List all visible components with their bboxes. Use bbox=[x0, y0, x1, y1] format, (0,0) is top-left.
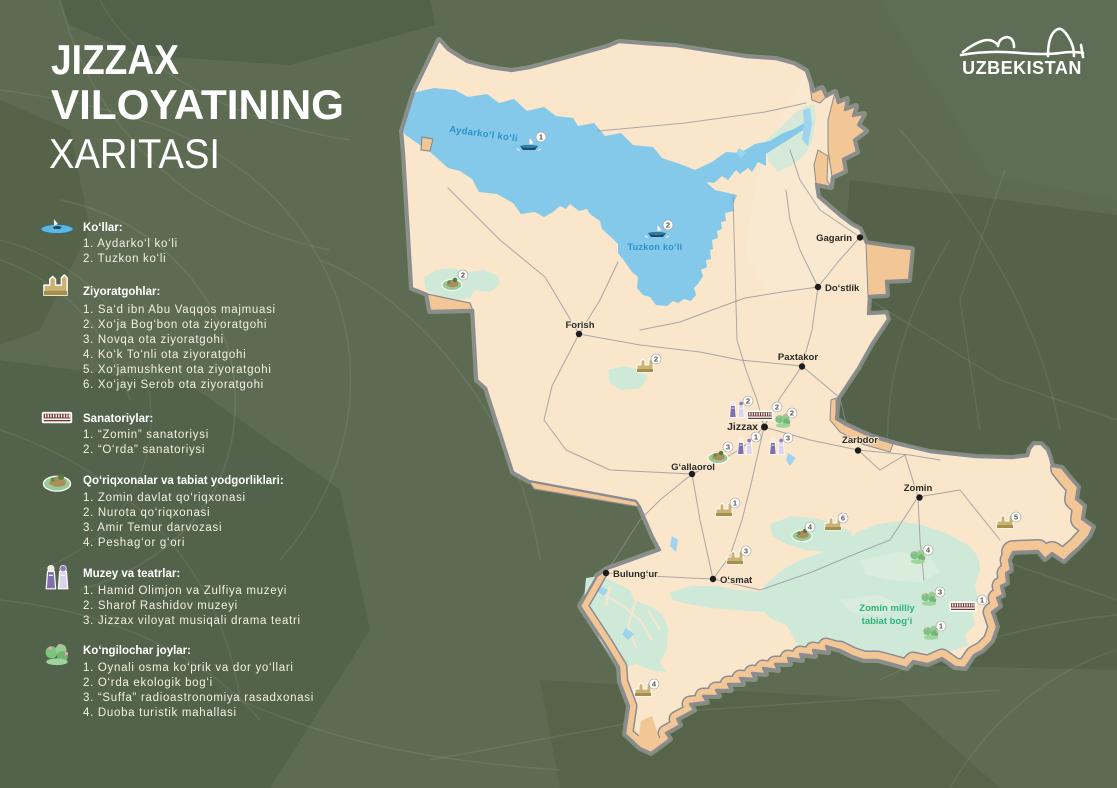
svg-text:1: 1 bbox=[754, 433, 758, 442]
svg-text:1: 1 bbox=[939, 622, 943, 631]
svg-text:4. Duoba turistik mahallasi: 4. Duoba turistik mahallasi bbox=[83, 707, 237, 719]
svg-text:Tuzkon ko‘li: Tuzkon ko‘li bbox=[628, 242, 683, 252]
svg-text:Zarbdor: Zarbdor bbox=[842, 435, 878, 446]
svg-text:O‘smat: O‘smat bbox=[720, 575, 753, 586]
svg-text:1. Aydarko‘l ko‘li: 1. Aydarko‘l ko‘li bbox=[83, 238, 178, 250]
svg-text:3. “Suffa” radioastronomiya ra: 3. “Suffa” radioastronomiya rasadxonasi bbox=[83, 692, 314, 704]
svg-text:UZBEKISTAN: UZBEKISTAN bbox=[962, 58, 1082, 78]
svg-text:4. Peshag‘or g‘ori: 4. Peshag‘or g‘ori bbox=[83, 537, 185, 549]
svg-text:1. Hamid Olimjon va Zulfiya mu: 1. Hamid Olimjon va Zulfiya muzeyi bbox=[83, 585, 287, 597]
svg-text:2. Tuzkon ko‘li: 2. Tuzkon ko‘li bbox=[83, 253, 166, 265]
svg-text:Ko‘llar:: Ko‘llar: bbox=[83, 222, 123, 234]
svg-text:Zomin milliy: Zomin milliy bbox=[859, 603, 915, 614]
svg-text:2: 2 bbox=[775, 403, 779, 412]
svg-text:Paxtakor: Paxtakor bbox=[778, 352, 818, 363]
svg-text:VILOYATINING: VILOYATINING bbox=[51, 81, 344, 128]
svg-text:Gagarin: Gagarin bbox=[816, 233, 852, 244]
svg-text:Zomin: Zomin bbox=[904, 483, 933, 494]
svg-text:1. “Zomin” sanatoriysi: 1. “Zomin” sanatoriysi bbox=[83, 429, 209, 441]
svg-text:3: 3 bbox=[726, 443, 730, 452]
svg-text:2: 2 bbox=[666, 221, 670, 230]
svg-text:tabiat bog‘i: tabiat bog‘i bbox=[862, 616, 913, 627]
svg-text:2: 2 bbox=[461, 271, 465, 280]
svg-text:Bulung‘ur: Bulung‘ur bbox=[613, 569, 658, 580]
svg-text:Sanatoriylar:: Sanatoriylar: bbox=[83, 413, 153, 425]
svg-text:Muzey va teatrlar:: Muzey va teatrlar: bbox=[83, 568, 180, 580]
svg-text:1. Oynali osma ko‘prik va dor: 1. Oynali osma ko‘prik va dor yo‘llari bbox=[83, 662, 294, 674]
svg-text:Forish: Forish bbox=[565, 320, 594, 331]
svg-text:3: 3 bbox=[938, 588, 942, 597]
svg-text:Ziyoratgohlar:: Ziyoratgohlar: bbox=[83, 286, 160, 298]
svg-text:3. Jizzax viloyat musiqali dra: 3. Jizzax viloyat musiqali drama teatri bbox=[83, 615, 301, 627]
svg-text:1. Sa‘d ibn Abu Vaqqos majmuas: 1. Sa‘d ibn Abu Vaqqos majmuasi bbox=[83, 304, 276, 316]
svg-text:2: 2 bbox=[654, 355, 658, 364]
svg-text:2: 2 bbox=[790, 409, 794, 418]
svg-text:5. Xo‘jamushkent ota ziyoratgo: 5. Xo‘jamushkent ota ziyoratgohi bbox=[83, 364, 272, 376]
svg-text:2. Nurota qo‘riqxonasi: 2. Nurota qo‘riqxonasi bbox=[83, 507, 210, 519]
svg-text:3: 3 bbox=[744, 547, 748, 556]
svg-text:XARITASI: XARITASI bbox=[49, 130, 220, 177]
svg-text:1: 1 bbox=[980, 596, 984, 605]
svg-text:Qo‘riqxonalar va tabiat yodgor: Qo‘riqxonalar va tabiat yodgorliklari: bbox=[83, 475, 284, 487]
svg-text:1. Zomin davlat qo‘riqxonasi: 1. Zomin davlat qo‘riqxonasi bbox=[83, 492, 246, 504]
svg-text:2. “O‘rda” sanatoriysi: 2. “O‘rda” sanatoriysi bbox=[83, 444, 205, 456]
svg-text:2. O‘rda ekologik bog‘i: 2. O‘rda ekologik bog‘i bbox=[83, 677, 213, 689]
svg-text:1: 1 bbox=[733, 499, 737, 508]
svg-text:3. Amir Temur darvozasi: 3. Amir Temur darvozasi bbox=[83, 522, 222, 534]
svg-text:Do‘stlik: Do‘stlik bbox=[825, 283, 860, 294]
svg-text:3: 3 bbox=[786, 434, 790, 443]
svg-text:5: 5 bbox=[1014, 513, 1018, 522]
svg-text:JIZZAX: JIZZAX bbox=[51, 36, 179, 83]
svg-text:1: 1 bbox=[539, 133, 543, 142]
svg-text:2: 2 bbox=[746, 397, 750, 406]
svg-text:6. Xo‘jayi Serob ota ziyoratgo: 6. Xo‘jayi Serob ota ziyoratgohi bbox=[83, 379, 264, 391]
svg-text:2. Xo‘ja Bog‘bon ota ziyoratgo: 2. Xo‘ja Bog‘bon ota ziyoratgohi bbox=[83, 319, 267, 331]
svg-text:3. Novqa ota ziyoratgohi: 3. Novqa ota ziyoratgohi bbox=[83, 334, 224, 346]
svg-text:2. Sharof Rashidov muzeyi: 2. Sharof Rashidov muzeyi bbox=[83, 600, 238, 612]
svg-text:6: 6 bbox=[841, 514, 845, 523]
svg-text:Ko‘ngilochar joylar:: Ko‘ngilochar joylar: bbox=[83, 645, 191, 657]
svg-text:Jizzax: Jizzax bbox=[727, 421, 758, 433]
svg-text:4. Ko‘k To‘nli ota ziyoratgohi: 4. Ko‘k To‘nli ota ziyoratgohi bbox=[83, 349, 246, 361]
